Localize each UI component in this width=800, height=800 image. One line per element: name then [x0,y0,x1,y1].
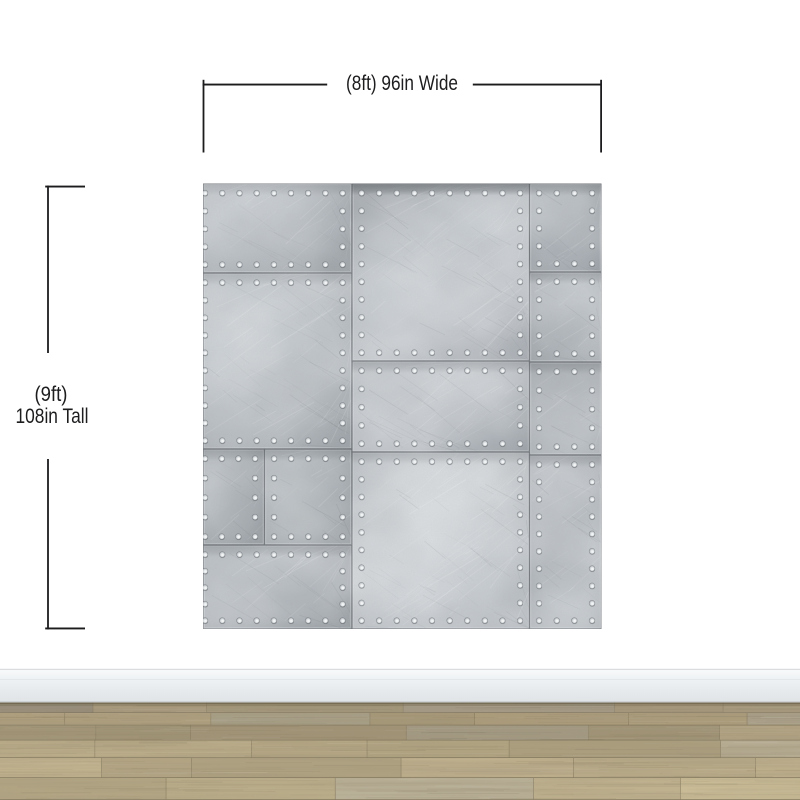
svg-text:108in Tall: 108in Tall [16,405,89,428]
svg-text:(9ft): (9ft) [35,383,68,406]
svg-text:(8ft) 96in Wide: (8ft) 96in Wide [346,72,458,95]
